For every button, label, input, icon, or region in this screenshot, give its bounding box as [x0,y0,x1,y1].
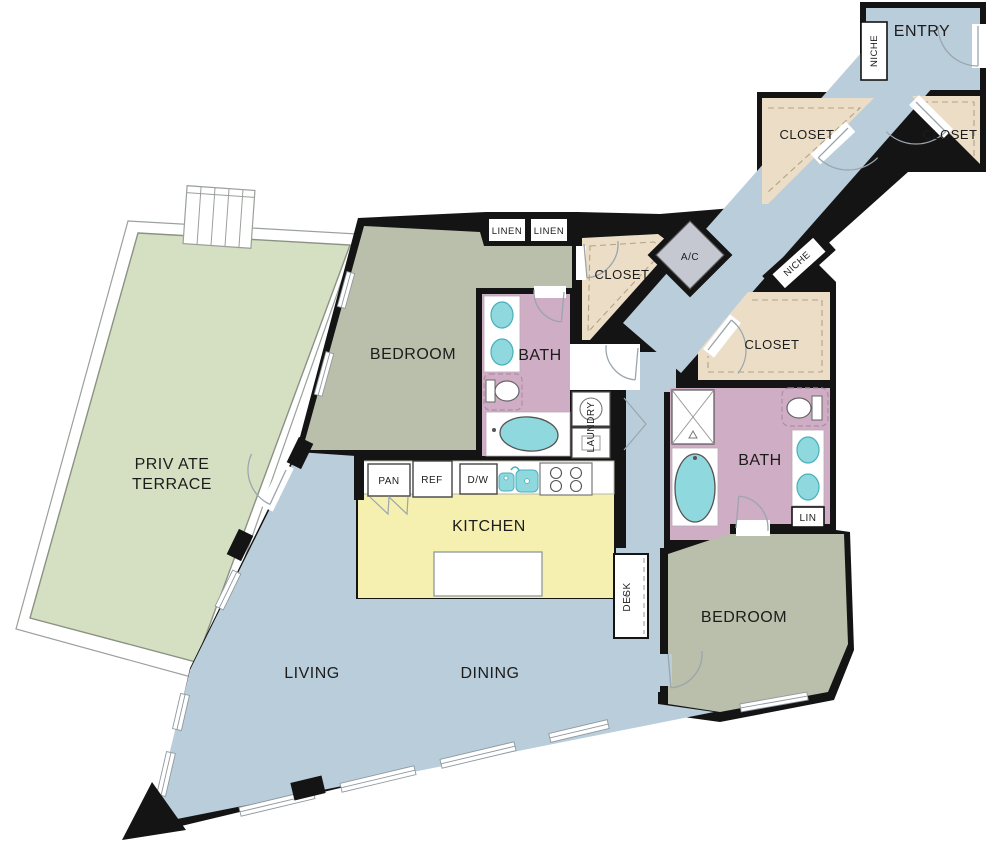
label-bedroom-secondary: BEDROOM [701,609,787,626]
label-ac: A/C [681,252,699,263]
bath1-tub [486,412,570,456]
bathtub-2-icon [675,454,715,522]
label-entry: ENTRY [894,23,950,40]
floor-plan-svg: ENTRY NICHE CLOSET CLOSET A/C NICHE CLOS… [0,0,991,844]
label-linen-secondary: LIN [799,513,816,524]
label-terrace-line1: PRIV ATE [135,456,210,473]
label-desk: DESK [622,582,633,611]
stove-icon [540,463,592,495]
label-pantry: PAN [378,476,399,487]
label-linen-right: LINEN [534,226,564,237]
kitchen-island [434,552,542,596]
front-door-gap [972,24,988,68]
hall-lower-column-fill [626,392,664,548]
label-laundry: LAUNDRY [586,401,597,452]
bath2-sink-icon-b [797,474,819,500]
label-closet-entry-right: CLOSET [922,127,977,142]
bath2-tub [672,448,718,526]
label-living: LIVING [284,665,339,682]
bath2-shower-icon [672,390,714,444]
terrace-stairs [183,186,255,249]
label-bedroom-primary: BEDROOM [370,346,456,363]
label-linen-left: LINEN [492,226,522,237]
label-dishwasher: D/W [468,475,489,486]
label-closet-primary: CLOSET [594,267,649,282]
bath2-sink-icon-a [797,437,819,463]
label-bath-secondary: BATH [738,452,781,469]
label-niche-entry: NICHE [869,35,880,67]
label-closet-entry-left: CLOSET [779,127,834,142]
label-bath-primary: BATH [518,347,561,364]
bath1-sink-icon-a [491,302,513,328]
label-kitchen: KITCHEN [452,518,526,535]
bath1-sink-icon-b [491,339,513,365]
label-terrace-line2: TERRACE [132,476,212,493]
kitchen-west-wall [354,452,364,500]
bath-primary [482,294,570,456]
label-dining: DINING [461,665,520,682]
label-refrigerator: REF [421,475,443,486]
label-closet-secondary: CLOSET [744,337,799,352]
floor-plan-page: ENTRY NICHE CLOSET CLOSET A/C NICHE CLOS… [0,0,991,844]
suite-vestibule [570,344,640,390]
